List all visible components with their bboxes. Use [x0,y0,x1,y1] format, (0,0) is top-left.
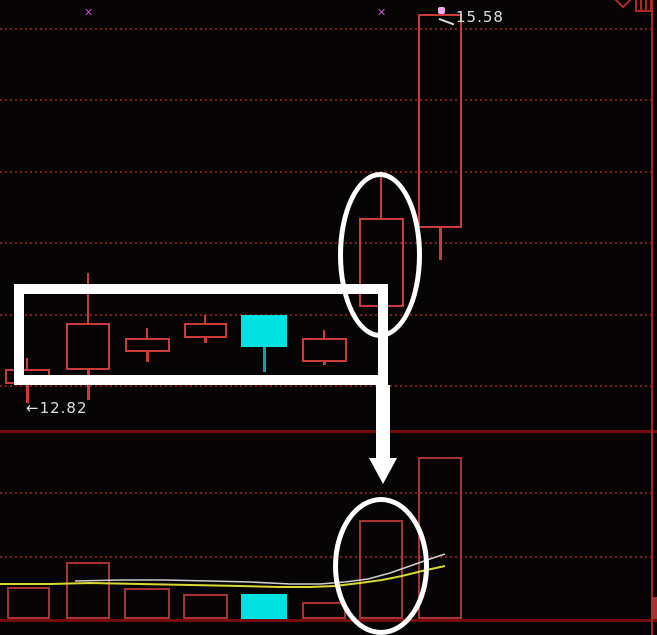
stock-chart-screenshot: ✕✕ 15.58 ←12.82 [0,0,657,635]
signal-x-marker: ✕ [84,7,93,18]
signal-x-marker: ✕ [377,7,386,18]
candle-wick [439,228,442,260]
annotation-rectangle [14,284,388,385]
low-price-value: 12.82 [40,399,88,417]
volume-bar [183,594,228,619]
volume-bar [241,594,287,619]
volume-bar [302,602,346,619]
volume-bar [66,562,110,619]
annotation-ellipse-bottom [333,497,429,635]
panel-icon-bar [645,0,647,10]
annotation-ellipse-top [338,172,422,338]
price-gridline [0,28,651,30]
volume-gridline [0,556,651,558]
panel-icon[interactable] [635,0,652,12]
annotation-arrow-shaft [376,385,390,458]
volume-baseline [0,619,657,622]
price-gridline [0,99,651,101]
high-price-label: 15.58 [456,10,504,25]
candle-body [418,14,462,228]
price-gridline [0,171,651,173]
volume-bar [7,587,50,619]
price-gridline [0,385,651,387]
annotation-arrow-head [369,458,397,484]
chart-right-border [651,0,653,635]
low-price-label: ←12.82 [26,401,88,416]
price-gridline [0,242,651,244]
pane-divider [0,430,657,433]
volume-bar [124,588,170,619]
left-arrow-icon: ← [26,399,40,417]
volume-bar [651,597,657,619]
panel-icon-bar [640,0,642,10]
chart-canvas: ✕✕ [0,0,657,635]
volume-gridline [0,492,651,494]
